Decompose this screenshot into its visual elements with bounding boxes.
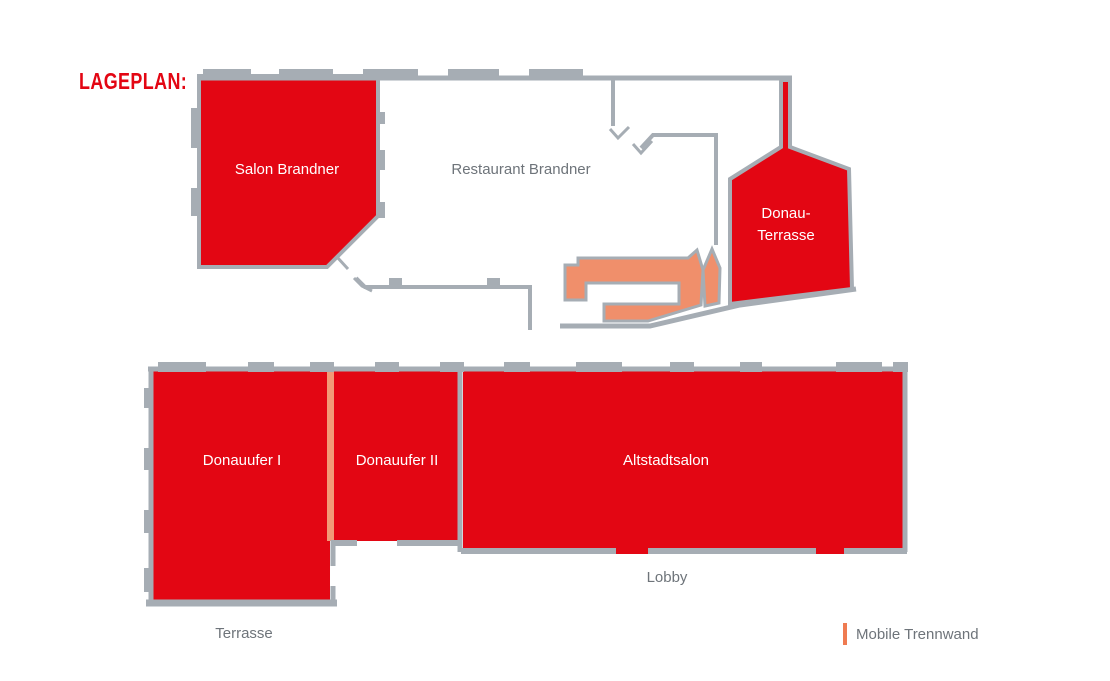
floor-plan-drawing [0,0,1110,681]
area-label-lobby: Lobby [647,568,688,588]
room-label-restaurant-brandner: Restaurant Brandner [451,160,590,180]
area-label-terrasse: Terrasse [215,624,273,644]
room-label-donau-terrasse-line1: Donau- [757,203,815,225]
legend-mobile-trennwand: Mobile Trennwand [843,623,979,645]
staircase-shape [565,250,703,321]
restaurant-walls [356,80,716,330]
stair-arrow [703,249,720,306]
room-label-donauufer-1: Donauufer I [203,451,281,471]
room-label-donau-terrasse: Donau- Terrasse [757,203,815,247]
mobile-partition-line [327,371,334,541]
donau-terrasse-room [730,80,852,304]
legend-label: Mobile Trennwand [856,626,979,643]
upper-building [191,69,856,330]
room-label-altstadtsalon: Altstadtsalon [623,451,709,471]
floor-plan: LAGEPLAN: Salon Brandner Restaurant Bran… [0,0,1110,681]
room-label-donau-terrasse-line2: Terrasse [757,225,815,247]
mobile-partition-marker [843,623,847,645]
donauufer-1-room [151,371,330,604]
door-swing-mark [610,127,629,138]
lower-building [144,362,908,605]
room-label-salon-brandner: Salon Brandner [235,160,339,180]
room-label-donauufer-2: Donauufer II [356,451,439,471]
lageplan-title: LAGEPLAN: [79,68,187,95]
